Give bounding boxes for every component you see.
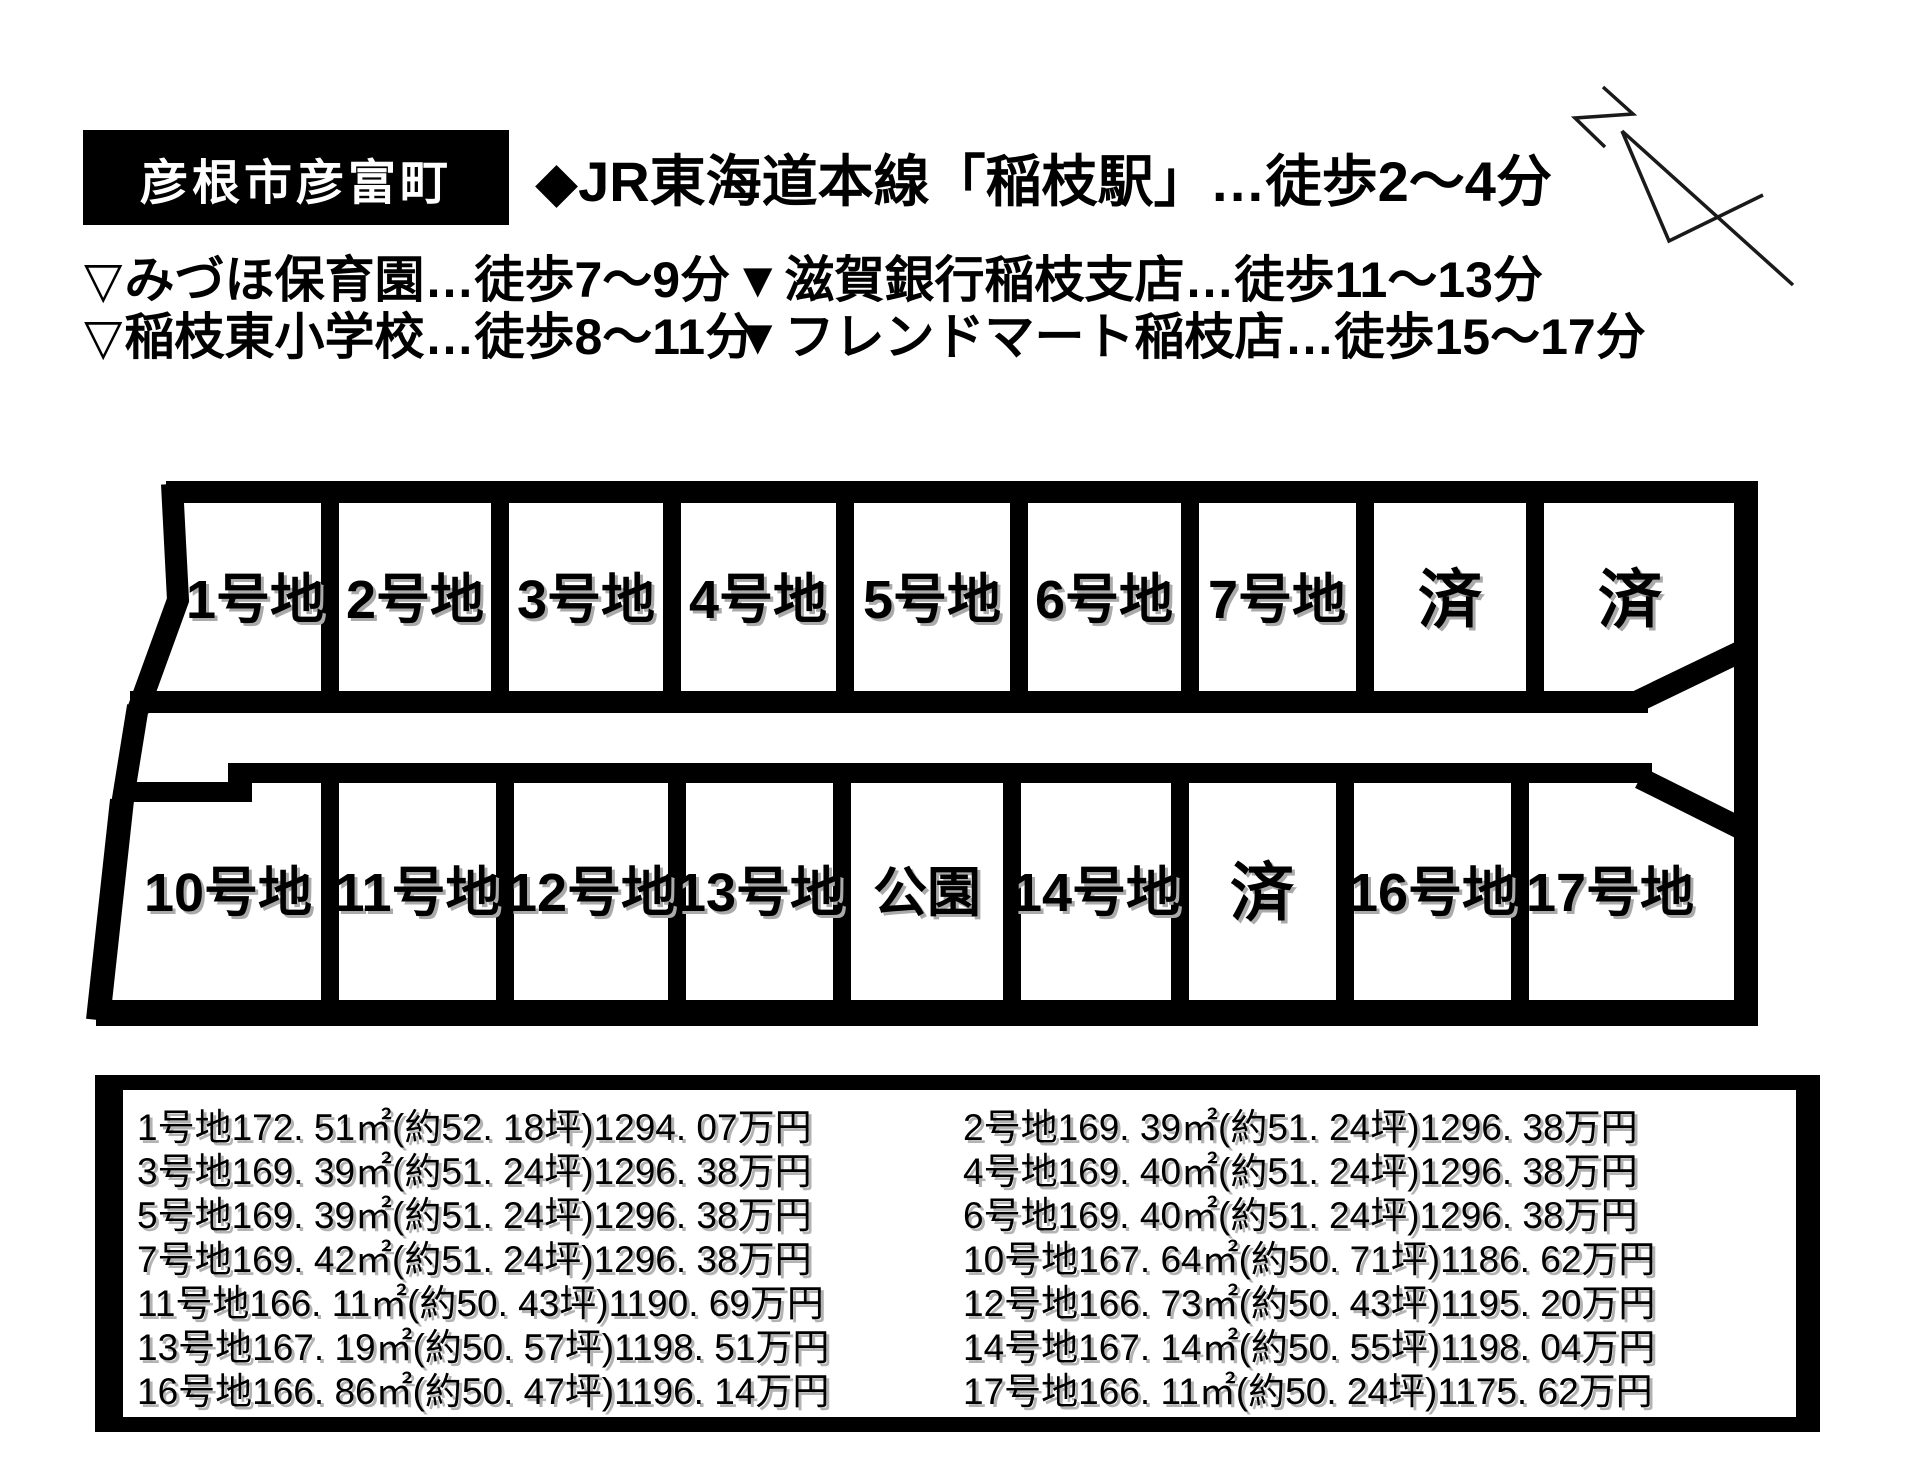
site-plan-borders (96, 482, 1758, 1026)
details-row: 1号地172. 51㎡(約52. 18坪)1294. 07万円 2号地169. … (137, 1106, 1796, 1150)
lot-label-10: 10号地 (144, 863, 312, 923)
details-row: 13号地167. 19㎡(約50. 57坪)1198. 51万円 14号地167… (137, 1326, 1796, 1370)
lot-detail: 1号地172. 51㎡(約52. 18坪)1294. 07万円 (137, 1106, 963, 1150)
details-row: 11号地166. 11㎡(約50. 43坪)1190. 69万円 12号地166… (137, 1282, 1796, 1326)
lot-label-1: 1号地 (186, 570, 324, 630)
lot-label-14: 14号地 (1012, 863, 1180, 923)
lot-labels-row2: 10号地 11号地 12号地 13号地 公園 14号地 済 16号地 17号地 (144, 857, 1694, 929)
lot-detail: 10号地167. 64㎡(約50. 71坪)1186. 62万円 (963, 1238, 1796, 1282)
lot-detail: 4号地169. 40㎡(約51. 24坪)1296. 38万円 (963, 1150, 1796, 1194)
lot-detail: 14号地167. 14㎡(約50. 55坪)1198. 04万円 (963, 1326, 1796, 1370)
details-row: 3号地169. 39㎡(約51. 24坪)1296. 38万円 4号地169. … (137, 1150, 1796, 1194)
lot-labels-row1: 1号地 2号地 3号地 4号地 5号地 6号地 7号地 済 済 (186, 564, 1663, 636)
lot-label-13: 13号地 (676, 863, 844, 923)
lot-detail: 11号地166. 11㎡(約50. 43坪)1190. 69万円 (137, 1282, 963, 1326)
lot-detail: 3号地169. 39㎡(約51. 24坪)1296. 38万円 (137, 1150, 963, 1194)
lot-label-12: 12号地 (507, 863, 675, 923)
lot-label-17: 17号地 (1526, 863, 1694, 923)
details-row: 5号地169. 39㎡(約51. 24坪)1296. 38万円 6号地169. … (137, 1194, 1796, 1238)
lot-label-2: 2号地 (346, 570, 484, 630)
lot-label-sold: 済 (1418, 564, 1483, 636)
lot-detail: 2号地169. 39㎡(約51. 24坪)1296. 38万円 (963, 1106, 1796, 1150)
lot-label-7: 7号地 (1208, 570, 1346, 630)
lot-label-16: 16号地 (1348, 863, 1516, 923)
north-arrow-icon (1575, 87, 1793, 285)
lot-detail: 12号地166. 73㎡(約50. 43坪)1195. 20万円 (963, 1282, 1796, 1326)
lot-label-sold: 済 (1598, 564, 1663, 636)
lot-label-sold: 済 (1230, 857, 1295, 929)
lot-label-park: 公園 (873, 863, 981, 923)
details-row: 7号地169. 42㎡(約51. 24坪)1296. 38万円 10号地167.… (137, 1238, 1796, 1282)
lot-details-box: 1号地172. 51㎡(約52. 18坪)1294. 07万円 2号地169. … (95, 1075, 1820, 1432)
lot-label-11: 11号地 (334, 863, 499, 923)
details-row: 16号地166. 86㎡(約50. 47坪)1196. 14万円 17号地166… (137, 1370, 1796, 1414)
lot-detail: 13号地167. 19㎡(約50. 57坪)1198. 51万円 (137, 1326, 963, 1370)
lot-label-5: 5号地 (863, 570, 1001, 630)
lot-detail: 5号地169. 39㎡(約51. 24坪)1296. 38万円 (137, 1194, 963, 1238)
lot-detail: 17号地166. 11㎡(約50. 24坪)1175. 62万円 (963, 1370, 1796, 1414)
lot-label-4: 4号地 (689, 570, 827, 630)
lot-label-6: 6号地 (1035, 570, 1173, 630)
lot-label-3: 3号地 (517, 570, 655, 630)
lot-detail: 16号地166. 86㎡(約50. 47坪)1196. 14万円 (137, 1370, 963, 1414)
lot-detail: 6号地169. 40㎡(約51. 24坪)1296. 38万円 (963, 1194, 1796, 1238)
lot-detail: 7号地169. 42㎡(約51. 24坪)1296. 38万円 (137, 1238, 963, 1282)
